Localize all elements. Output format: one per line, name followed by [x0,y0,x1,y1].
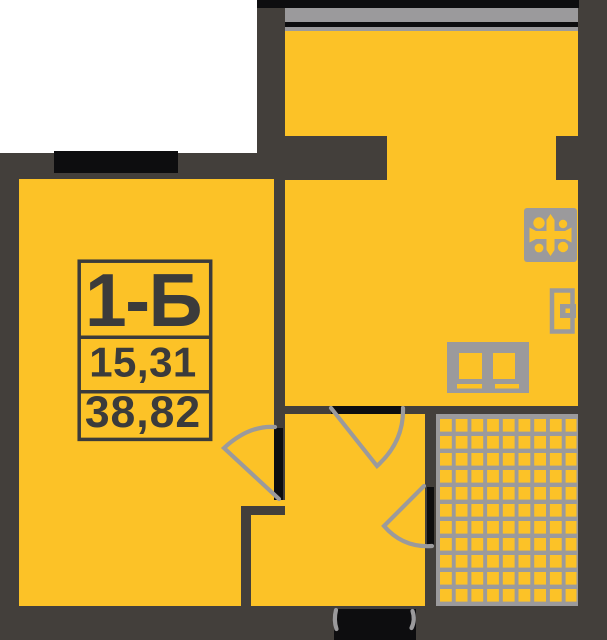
svg-text:1-Б: 1-Б [85,258,201,342]
svg-text:38,82: 38,82 [85,388,201,437]
svg-text:15,31: 15,31 [89,339,197,386]
